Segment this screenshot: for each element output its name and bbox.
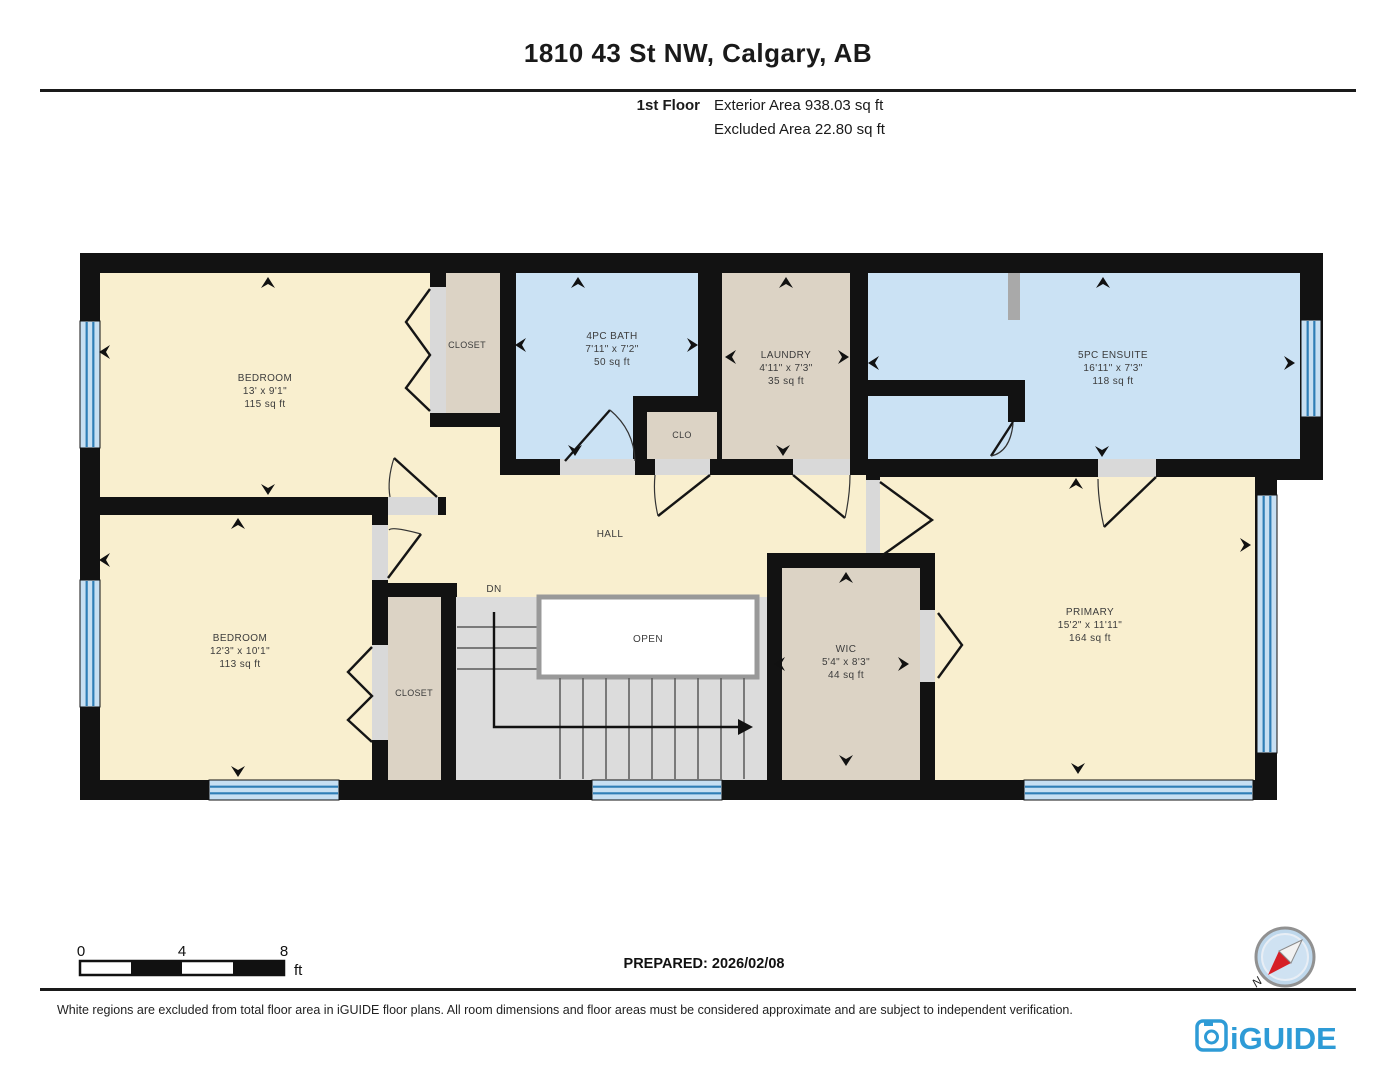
label-dn: DN [486, 584, 501, 595]
svg-text:4'11" x 7'3": 4'11" x 7'3" [759, 363, 812, 374]
svg-text:5'4" x 8'3": 5'4" x 8'3" [822, 657, 870, 668]
label-bath: 4PC BATH [586, 331, 637, 342]
floor-plan-canvas: BEDROOM 13' x 9'1" 115 sq ft CLOSET 4PC … [0, 0, 1396, 1080]
label-wic: WIC [836, 644, 857, 655]
prepared-date: PREPARED: 2026/02/08 [624, 956, 785, 972]
floorplan-page: 1810 43 St NW, Calgary, AB 1st Floor Ext… [0, 0, 1396, 1080]
window [209, 780, 339, 800]
window [80, 321, 100, 448]
stairs [456, 597, 767, 780]
door-opening-laundry [793, 459, 850, 475]
floor-plan: BEDROOM 13' x 9'1" 115 sq ft CLOSET 4PC … [80, 253, 1323, 800]
scale-tick-8: 8 [280, 943, 288, 960]
door-opening-closet-bottom [372, 645, 388, 740]
label-bedroom-bl: BEDROOM [213, 633, 267, 644]
door-opening-ensuite [1098, 459, 1156, 477]
svg-text:15'2" x 11'11": 15'2" x 11'11" [1058, 620, 1123, 631]
door-opening-clo [655, 459, 710, 475]
door-opening-bath [560, 459, 635, 475]
svg-text:13' x 9'1": 13' x 9'1" [243, 386, 287, 397]
svg-text:12'3" x 10'1": 12'3" x 10'1" [210, 646, 270, 657]
window [1024, 780, 1253, 800]
window [80, 580, 100, 707]
svg-text:35 sq ft: 35 sq ft [768, 376, 804, 387]
compass-icon: N [1249, 928, 1314, 990]
svg-text:16'11" x 7'3": 16'11" x 7'3" [1083, 363, 1142, 374]
scale-tick-0: 0 [77, 943, 85, 960]
label-clo: CLO [672, 430, 691, 440]
window [1257, 495, 1277, 753]
room-bedroom-top-left [100, 273, 430, 497]
label-closet-bottom: CLOSET [395, 688, 433, 698]
window [592, 780, 722, 800]
door-opening-primary [866, 480, 880, 555]
door-opening-wic [920, 610, 935, 682]
door-opening-bedroom-bottom-left [372, 525, 388, 580]
label-bedroom-tl: BEDROOM [238, 373, 292, 384]
footer-divider [40, 988, 1356, 991]
svg-text:113 sq ft: 113 sq ft [219, 659, 260, 670]
label-ensuite: 5PC ENSUITE [1078, 350, 1148, 361]
label-laundry: LAUNDRY [761, 350, 811, 361]
label-hall: HALL [597, 529, 624, 540]
label-open: OPEN [633, 634, 663, 645]
scale-tick-4: 4 [178, 943, 186, 960]
shower-partition [1008, 273, 1020, 320]
svg-text:44 sq ft: 44 sq ft [828, 670, 864, 681]
label-primary: PRIMARY [1066, 607, 1114, 618]
svg-text:118 sq ft: 118 sq ft [1092, 376, 1133, 387]
iguide-logo-text: iGUIDE [1230, 1021, 1337, 1056]
window [1301, 320, 1321, 417]
label-closet-top: CLOSET [448, 340, 486, 350]
door-opening-bedroom-top-left [388, 497, 438, 515]
svg-text:7'11" x 7'2": 7'11" x 7'2" [585, 344, 638, 355]
iguide-logo: iGUIDE [1197, 1021, 1337, 1056]
door-opening-closet-top [430, 287, 446, 413]
footer-disclaimer: White regions are excluded from total fl… [57, 1003, 1073, 1017]
scale-unit: ft [294, 962, 303, 979]
svg-text:115 sq ft: 115 sq ft [244, 399, 285, 410]
svg-text:164 sq ft: 164 sq ft [1069, 633, 1111, 644]
scale-bar: 0 4 8 ft [77, 943, 303, 979]
svg-text:50 sq ft: 50 sq ft [594, 357, 630, 368]
